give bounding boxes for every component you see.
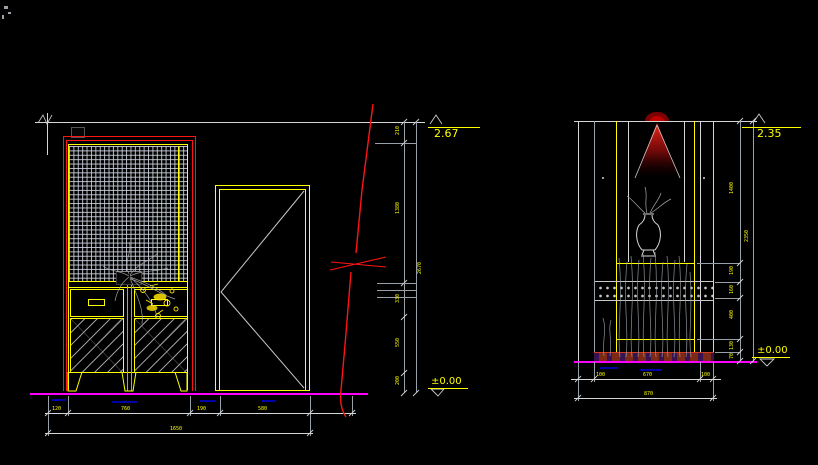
marker-underline bbox=[752, 357, 790, 358]
cad-drawing-canvas[interactable]: 2.67 ±0.00 2.35 ±0.00 120 760 190 580 16… bbox=[0, 0, 818, 465]
dim-value: 670 bbox=[643, 373, 652, 378]
dim-value-total: 870 bbox=[644, 392, 653, 397]
dim-value: 100 bbox=[596, 373, 605, 378]
light-beam-cone bbox=[635, 123, 679, 177]
door-swing-lines bbox=[221, 191, 304, 388]
panel-diagonals bbox=[70, 318, 186, 372]
elevation-value: 2.67 bbox=[434, 128, 459, 139]
dim-value: 760 bbox=[121, 407, 130, 412]
dim-value: 70 bbox=[730, 353, 735, 359]
dim-value: 100 bbox=[701, 373, 710, 378]
decorative-grass bbox=[603, 252, 691, 357]
dim-value: 130 bbox=[730, 341, 735, 350]
dim-value-total: 2670 bbox=[418, 262, 423, 274]
marker-underline bbox=[428, 388, 468, 389]
cabinet-legs bbox=[68, 372, 187, 391]
dim-value-total: 1650 bbox=[170, 427, 182, 432]
plant-foliage bbox=[103, 242, 175, 324]
elevation-triangle-up bbox=[430, 115, 442, 124]
plant-flowers bbox=[141, 284, 179, 319]
dim-value: 160 bbox=[730, 285, 735, 294]
elevation-triangle-up bbox=[753, 114, 765, 123]
dim-value: 1380 bbox=[396, 202, 401, 214]
elevation-value: ±0.00 bbox=[757, 346, 788, 356]
vase-branches bbox=[627, 187, 671, 213]
vector-overlay bbox=[0, 0, 818, 465]
dim-value: 190 bbox=[197, 407, 206, 412]
section-break-symbol bbox=[330, 257, 386, 270]
elevation-value: ±0.00 bbox=[431, 377, 462, 387]
dim-value: 580 bbox=[258, 407, 267, 412]
dim-value-total: 2350 bbox=[745, 230, 750, 242]
elevation-triangle-down bbox=[760, 359, 774, 366]
break-zigzag bbox=[38, 115, 52, 124]
dim-value: 1400 bbox=[730, 182, 735, 194]
elevation-value: 2.35 bbox=[757, 128, 782, 139]
section-line bbox=[341, 104, 373, 417]
dim-value: 550 bbox=[396, 338, 401, 347]
dim-value: 330 bbox=[396, 294, 401, 303]
elevation-triangle-down bbox=[431, 389, 444, 396]
vase bbox=[637, 214, 661, 256]
dim-value: 400 bbox=[730, 310, 735, 319]
dim-value: 190 bbox=[730, 266, 735, 275]
dim-value: 210 bbox=[396, 126, 401, 135]
dim-value: 120 bbox=[52, 407, 61, 412]
dim-value: 200 bbox=[396, 376, 401, 385]
